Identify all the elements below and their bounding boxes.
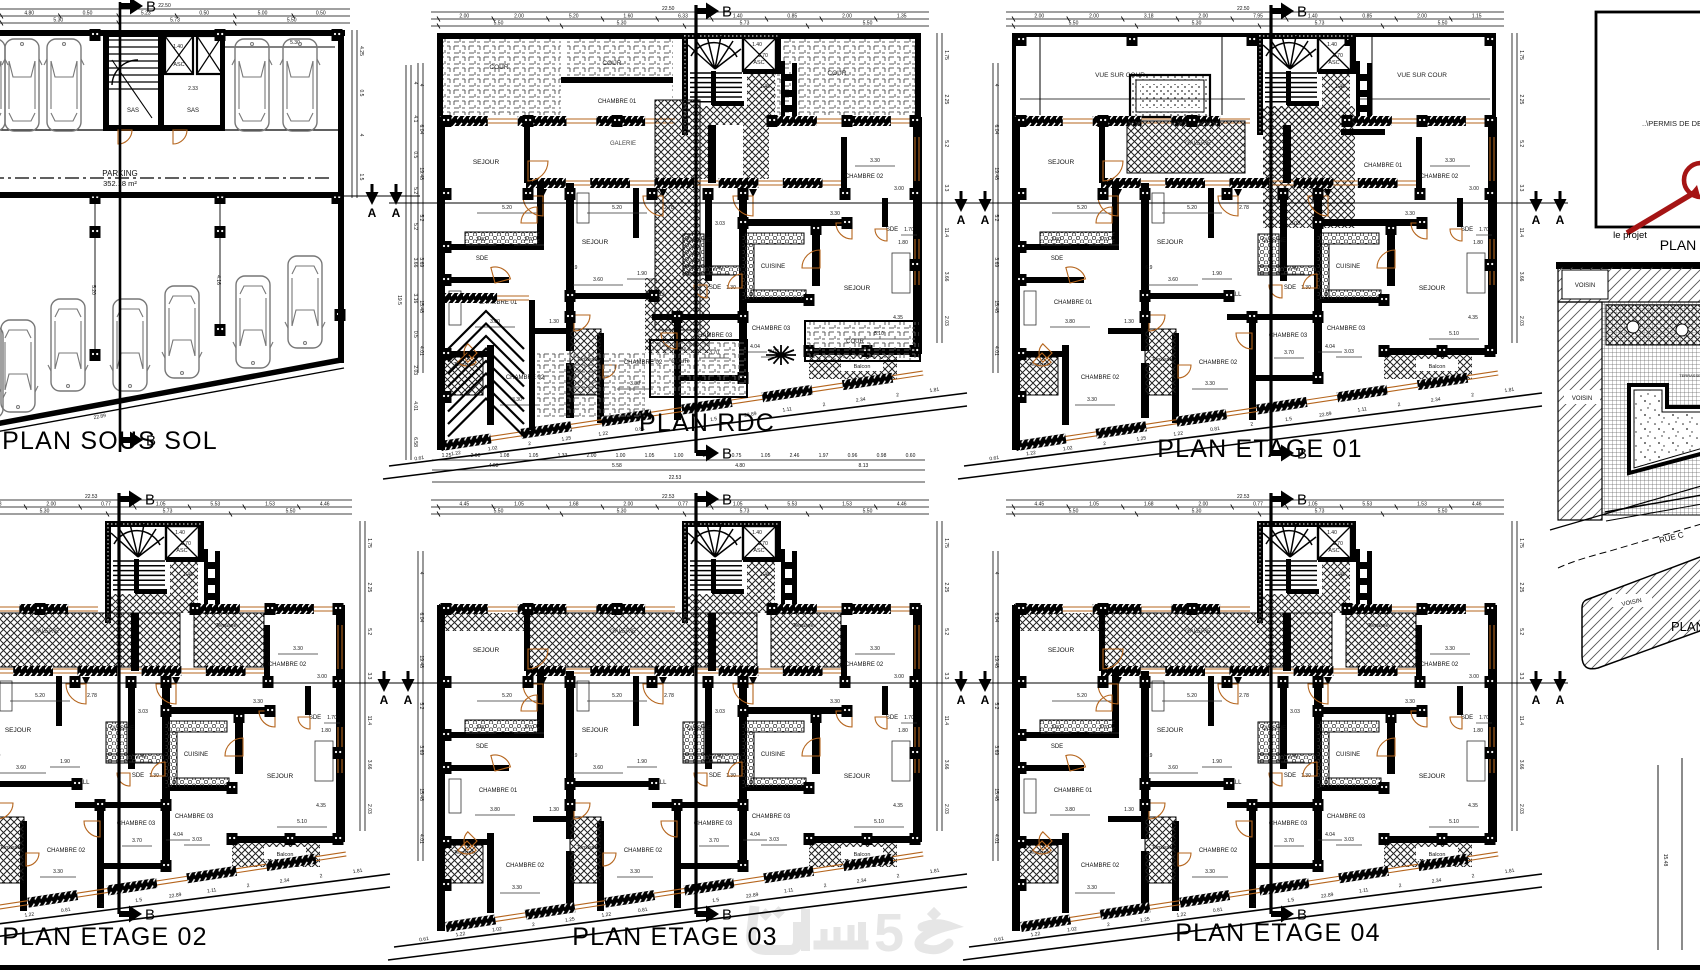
svg-text:CHAMBRE 02: CHAMBRE 02	[845, 662, 884, 668]
svg-text:3.18: 3.18	[1144, 14, 1154, 20]
svg-text:SEJOUR: SEJOUR	[267, 773, 294, 780]
svg-text:CHAMBRE 02: CHAMBRE 02	[47, 848, 86, 854]
svg-text:B: B	[722, 446, 732, 463]
svg-text:4.16: 4.16	[215, 275, 221, 285]
svg-text:3.66: 3.66	[366, 760, 372, 770]
svg-text:3.30: 3.30	[1087, 397, 1097, 403]
svg-text:1.90: 1.90	[1212, 759, 1222, 765]
svg-text:5.58: 5.58	[612, 463, 622, 469]
svg-text:ASC: ASC	[176, 548, 187, 554]
svg-text:5.20: 5.20	[502, 205, 512, 211]
svg-text:CHAMBRE 02: CHAMBRE 02	[1199, 848, 1238, 854]
svg-text:5.2: 5.2	[366, 628, 372, 635]
svg-text:5.2: 5.2	[993, 215, 999, 222]
svg-text:5.20: 5.20	[1077, 693, 1087, 699]
svg-text:1.30: 1.30	[549, 807, 559, 813]
svg-text:3.69: 3.69	[993, 745, 999, 755]
svg-text:CHAMBRE 02: CHAMBRE 02	[1199, 360, 1238, 366]
svg-text:3.3: 3.3	[1518, 673, 1524, 680]
svg-text:0.75: 0.75	[732, 453, 742, 459]
svg-text:15.48: 15.48	[418, 788, 424, 801]
svg-text:ASC: ASC	[753, 60, 764, 66]
svg-text:CHAMBRE 03: CHAMBRE 03	[1327, 814, 1366, 820]
svg-text:VOISIN: VOISIN	[1575, 283, 1595, 289]
svg-text:GALERIE: GALERIE	[1185, 629, 1211, 635]
svg-text:CHAMBRE 03: CHAMBRE 03	[694, 333, 733, 339]
svg-text:CHAMBRE 03: CHAMBRE 03	[117, 821, 156, 827]
svg-text:4.01: 4.01	[418, 834, 424, 844]
svg-text:1.90: 1.90	[637, 271, 647, 277]
svg-text:2.40: 2.40	[1051, 725, 1061, 731]
svg-text:3.03: 3.03	[1290, 709, 1300, 715]
svg-text:5.50: 5.50	[494, 21, 504, 27]
svg-text:22.53: 22.53	[662, 494, 675, 500]
svg-text:3.60: 3.60	[1168, 277, 1178, 283]
svg-text:5.2: 5.2	[412, 187, 418, 194]
svg-text:1.70: 1.70	[327, 715, 337, 721]
svg-text:2.78: 2.78	[664, 205, 674, 211]
svg-text:Terrasse: Terrasse	[576, 845, 597, 851]
svg-text:15.48: 15.48	[993, 300, 999, 313]
svg-text:8.13: 8.13	[859, 463, 869, 469]
svg-text:SDE: SDE	[1284, 285, 1296, 291]
svg-text:2.78: 2.78	[664, 693, 674, 699]
svg-text:0.50: 0.50	[83, 11, 93, 17]
svg-text:5.2: 5.2	[418, 215, 424, 222]
svg-text:1.08: 1.08	[500, 453, 510, 459]
svg-text:TERRASSE: TERRASSE	[1679, 373, 1700, 378]
svg-text:SEJOUR: SEJOUR	[1157, 727, 1184, 734]
svg-text:COUR: COUR	[489, 64, 508, 71]
svg-text:5.20: 5.20	[502, 693, 512, 699]
svg-text:1.40: 1.40	[175, 530, 185, 536]
svg-text:3.30: 3.30	[1445, 646, 1455, 652]
svg-text:1.80: 1.80	[1473, 240, 1483, 246]
svg-text:5.50: 5.50	[863, 509, 873, 515]
svg-text:2.25: 2.25	[943, 583, 949, 593]
svg-text:2.40: 2.40	[476, 725, 486, 731]
svg-text:5.50: 5.50	[1069, 509, 1079, 515]
svg-text:5.10: 5.10	[1449, 331, 1459, 337]
svg-text:1.70: 1.70	[758, 53, 768, 59]
svg-text:4.04: 4.04	[173, 832, 183, 838]
svg-text:4.35: 4.35	[893, 803, 903, 809]
svg-text:1.70: 1.70	[1479, 227, 1489, 233]
svg-text:SAS: SAS	[187, 108, 199, 114]
svg-text:3.3: 3.3	[943, 185, 949, 192]
svg-text:3.69: 3.69	[418, 257, 424, 267]
svg-text:15.48: 15.48	[1662, 854, 1668, 867]
svg-text:3.30: 3.30	[1405, 211, 1415, 217]
svg-text:SEJOUR: SEJOUR	[1419, 285, 1446, 292]
svg-text:1.5: 1.5	[1285, 416, 1293, 423]
svg-text:PLAN ETAGE 03: PLAN ETAGE 03	[572, 923, 778, 951]
svg-text:3.30: 3.30	[53, 869, 63, 875]
svg-text:2.03: 2.03	[943, 316, 949, 326]
svg-text:VOISIN: VOISIN	[1572, 396, 1592, 402]
svg-text:11.4: 11.4	[366, 716, 372, 726]
svg-text:0.85: 0.85	[787, 14, 797, 20]
svg-text:SEJOUR: SEJOUR	[1157, 239, 1184, 246]
svg-text:2.40: 2.40	[1051, 237, 1061, 243]
svg-text:1.05: 1.05	[156, 502, 166, 508]
svg-text:SDE: SDE	[476, 256, 488, 262]
svg-text:le projet: le projet	[1613, 230, 1647, 241]
svg-text:4.35: 4.35	[1468, 803, 1478, 809]
svg-text:ASC: ASC	[173, 62, 184, 68]
svg-text:ASC: ASC	[753, 548, 764, 554]
svg-text:PLAN ETAGE 02: PLAN ETAGE 02	[2, 923, 208, 951]
svg-text:1.40: 1.40	[1327, 42, 1337, 48]
svg-text:Terrasse: Terrasse	[1151, 845, 1172, 851]
svg-text:CHAMBRE 02: CHAMBRE 02	[1081, 863, 1120, 869]
svg-text:SDE: SDE	[886, 227, 898, 233]
svg-text:2.03: 2.03	[412, 365, 418, 375]
svg-text:CUISINE: CUISINE	[1336, 752, 1360, 758]
svg-text:6.9: 6.9	[571, 265, 578, 271]
svg-text:3.00: 3.00	[317, 674, 327, 680]
svg-text:Terrasse: Terrasse	[215, 623, 236, 629]
svg-text:6.33: 6.33	[678, 14, 688, 20]
svg-text:3.30: 3.30	[1205, 381, 1215, 387]
svg-text:15.48: 15.48	[993, 788, 999, 801]
svg-text:5.2: 5.2	[1518, 140, 1524, 147]
svg-text:3.30: 3.30	[253, 699, 263, 705]
svg-text:1.5: 1.5	[712, 897, 720, 904]
svg-text:2.03: 2.03	[1518, 804, 1524, 814]
svg-text:A: A	[1556, 213, 1565, 227]
svg-text:1.40: 1.40	[733, 14, 743, 20]
svg-text:7.95: 7.95	[1253, 14, 1263, 20]
svg-text:SDE: SDE	[309, 715, 321, 721]
svg-text:5: 5	[874, 903, 904, 963]
svg-text:GALERIE: GALERIE	[33, 629, 59, 635]
svg-text:CHAMBRE 01: CHAMBRE 01	[598, 99, 637, 105]
svg-text:0.5: 0.5	[412, 331, 418, 338]
svg-text:CHAMBRE 02: CHAMBRE 02	[1420, 174, 1459, 180]
svg-text:22.53: 22.53	[669, 475, 682, 481]
svg-text:SDE: SDE	[1461, 227, 1473, 233]
svg-text:Balcon: Balcon	[854, 852, 871, 858]
svg-text:COUR: COUR	[846, 339, 864, 345]
svg-text:SEJOUR: SEJOUR	[473, 647, 500, 654]
svg-text:3.30: 3.30	[1087, 885, 1097, 891]
svg-text:CHAMBRE 03: CHAMBRE 03	[175, 814, 214, 820]
svg-text:5.30: 5.30	[1192, 21, 1202, 27]
svg-text:11.4: 11.4	[1518, 228, 1524, 238]
svg-text:VUE SUR COUR: VUE SUR COUR	[1397, 72, 1447, 79]
svg-text:4.01: 4.01	[418, 346, 424, 356]
svg-text:1.25: 1.25	[442, 453, 452, 459]
svg-text:3.70: 3.70	[709, 838, 719, 844]
svg-text:A: A	[1532, 693, 1541, 707]
svg-text:4.46: 4.46	[320, 502, 330, 508]
svg-text:1.33: 1.33	[558, 453, 568, 459]
svg-text:3.66: 3.66	[943, 760, 949, 770]
svg-text:SEJOUR: SEJOUR	[844, 285, 871, 292]
svg-text:B: B	[145, 907, 155, 924]
svg-text:A: A	[1532, 213, 1541, 227]
svg-text:SAS: SAS	[127, 108, 139, 114]
svg-text:CHAMBRE 02: CHAMBRE 02	[1081, 375, 1120, 381]
svg-text:5.50: 5.50	[1069, 21, 1079, 27]
svg-text:1.75: 1.75	[1518, 538, 1524, 548]
svg-text:3.3: 3.3	[366, 673, 372, 680]
svg-text:SDE: SDE	[1051, 256, 1063, 262]
svg-text:5.20: 5.20	[569, 14, 579, 20]
svg-text:4.45: 4.45	[459, 502, 469, 508]
svg-text:5.73: 5.73	[740, 21, 750, 27]
svg-text:1.90: 1.90	[637, 759, 647, 765]
svg-text:Balcon: Balcon	[1429, 852, 1446, 858]
svg-text:3.03: 3.03	[1344, 349, 1354, 355]
svg-text:1.05: 1.05	[514, 502, 524, 508]
svg-text:1.40: 1.40	[752, 530, 762, 536]
svg-text:5.73: 5.73	[163, 509, 173, 515]
svg-text:3.00: 3.00	[894, 186, 904, 192]
svg-text:5.2: 5.2	[418, 703, 424, 710]
svg-text:2.78: 2.78	[87, 693, 97, 699]
svg-text:19.48: 19.48	[418, 167, 424, 180]
svg-text:0.85: 0.85	[1362, 14, 1372, 20]
svg-text:1.70: 1.70	[181, 541, 191, 547]
svg-text:1.70: 1.70	[904, 227, 914, 233]
svg-text:1.68: 1.68	[1144, 502, 1154, 508]
svg-text:15.48: 15.48	[418, 300, 424, 313]
svg-text:SDE: SDE	[1051, 744, 1063, 750]
svg-text:PLAN ETAGE 01: PLAN ETAGE 01	[1157, 435, 1363, 463]
svg-text:5.20: 5.20	[1187, 205, 1197, 211]
svg-text:3.03: 3.03	[715, 709, 725, 715]
svg-text:4.80: 4.80	[24, 11, 34, 17]
svg-text:5.20: 5.20	[90, 285, 96, 295]
svg-text:PLAN: PLAN	[1671, 619, 1700, 634]
svg-text:5.00: 5.00	[258, 11, 268, 17]
svg-text:1.68: 1.68	[569, 502, 579, 508]
svg-text:0.50: 0.50	[199, 11, 209, 17]
svg-text:CHAMBRE 02: CHAMBRE 02	[845, 174, 884, 180]
svg-text:2.70: 2.70	[1099, 725, 1109, 731]
svg-text:CHAMBRE 02: CHAMBRE 02	[268, 662, 307, 668]
svg-text:11.4: 11.4	[1518, 716, 1524, 726]
svg-text:B: B	[722, 492, 732, 509]
svg-text:4: 4	[358, 134, 364, 137]
svg-text:0.98: 0.98	[877, 453, 887, 459]
svg-text:1.05: 1.05	[1089, 502, 1099, 508]
svg-text:CHAMBRE 02: CHAMBRE 02	[1420, 662, 1459, 668]
svg-text:2.70: 2.70	[1099, 237, 1109, 243]
svg-text:A: A	[1556, 693, 1565, 707]
svg-text:4: 4	[418, 84, 424, 87]
svg-text:3.80: 3.80	[490, 807, 500, 813]
svg-text:PLAN RDC: PLAN RDC	[639, 409, 775, 437]
svg-text:1.75: 1.75	[1518, 50, 1524, 60]
svg-text:3.66: 3.66	[1518, 272, 1524, 282]
svg-text:3.60: 3.60	[16, 765, 26, 771]
svg-text:2.00: 2.00	[46, 502, 56, 508]
svg-text:5.20: 5.20	[1077, 205, 1087, 211]
svg-text:3.30: 3.30	[1445, 158, 1455, 164]
svg-text:4.04: 4.04	[1325, 832, 1335, 838]
svg-text:4: 4	[412, 82, 418, 85]
svg-text:4.01: 4.01	[993, 834, 999, 844]
svg-text:5.50: 5.50	[286, 509, 296, 515]
svg-text:1.80: 1.80	[898, 240, 908, 246]
svg-text:3.03: 3.03	[769, 837, 779, 843]
svg-text:1.80: 1.80	[321, 728, 331, 734]
svg-text:5.20: 5.20	[612, 693, 622, 699]
svg-text:5.30: 5.30	[40, 509, 50, 515]
svg-text:2.00: 2.00	[1417, 14, 1427, 20]
svg-text:1.90: 1.90	[1212, 271, 1222, 277]
svg-text:SDE: SDE	[1461, 715, 1473, 721]
svg-text:4.46: 4.46	[897, 502, 907, 508]
svg-text:5.30: 5.30	[53, 18, 63, 24]
svg-text:2.25: 2.25	[943, 95, 949, 105]
svg-text:5.30: 5.30	[617, 509, 627, 515]
svg-text:3.69: 3.69	[418, 745, 424, 755]
svg-text:4.01: 4.01	[993, 346, 999, 356]
svg-text:6.04: 6.04	[418, 613, 424, 623]
svg-text:3.3: 3.3	[943, 673, 949, 680]
svg-text:2.03: 2.03	[1518, 316, 1524, 326]
svg-text:5.2: 5.2	[943, 628, 949, 635]
svg-text:Terrasse: Terrasse	[1367, 623, 1388, 629]
svg-text:4: 4	[418, 572, 424, 575]
svg-text:GALERIE: GALERIE	[610, 141, 636, 147]
svg-text:1.00: 1.00	[616, 453, 626, 459]
svg-text:22.53: 22.53	[1237, 494, 1250, 500]
svg-text:5.20: 5.20	[612, 205, 622, 211]
svg-text:PLAN SOUS SOL: PLAN SOUS SOL	[2, 427, 218, 455]
svg-text:0.96: 0.96	[848, 453, 858, 459]
svg-text:5.2: 5.2	[993, 703, 999, 710]
svg-text:3.3: 3.3	[1518, 185, 1524, 192]
svg-text:1.80: 1.80	[898, 728, 908, 734]
svg-text:5.10: 5.10	[874, 819, 884, 825]
svg-text:B: B	[1297, 492, 1307, 509]
svg-text:0.5: 0.5	[358, 90, 364, 97]
svg-text:5.30: 5.30	[617, 21, 627, 27]
svg-text:3.00: 3.00	[1469, 674, 1479, 680]
svg-text:5.20: 5.20	[35, 693, 45, 699]
svg-text:PLAN ETAGE 04: PLAN ETAGE 04	[1175, 919, 1381, 947]
svg-text:2.40: 2.40	[136, 754, 146, 760]
svg-text:SDE: SDE	[709, 285, 721, 291]
svg-text:CUISINE: CUISINE	[184, 752, 208, 758]
svg-text:3.16: 3.16	[412, 294, 418, 304]
svg-text:19.48: 19.48	[993, 655, 999, 668]
svg-text:2.46: 2.46	[790, 453, 800, 459]
svg-text:1.15: 1.15	[1472, 14, 1482, 20]
svg-text:19.48: 19.48	[993, 167, 999, 180]
svg-text:6.04: 6.04	[418, 125, 424, 135]
svg-text:A: A	[368, 206, 377, 220]
svg-text:5.73: 5.73	[740, 509, 750, 515]
svg-text:4: 4	[993, 84, 999, 87]
svg-text:SEJOUR: SEJOUR	[5, 727, 32, 734]
svg-text:1.30: 1.30	[549, 319, 559, 325]
svg-text:19.5: 19.5	[396, 295, 402, 305]
svg-text:B: B	[722, 4, 732, 21]
svg-text:2.03: 2.03	[943, 804, 949, 814]
svg-text:3.30: 3.30	[1405, 699, 1415, 705]
svg-text:0.5: 0.5	[412, 151, 418, 158]
svg-text:11.4: 11.4	[943, 228, 949, 238]
svg-text:2.33: 2.33	[188, 86, 198, 92]
svg-text:1.05: 1.05	[1308, 502, 1318, 508]
svg-text:4.80: 4.80	[735, 463, 745, 469]
svg-text:1.90: 1.90	[60, 759, 70, 765]
svg-text:CHAMBRE 03: CHAMBRE 03	[1269, 333, 1308, 339]
svg-text:SDE: SDE	[886, 715, 898, 721]
svg-text:1.40: 1.40	[1308, 14, 1318, 20]
svg-text:SEJOUR: SEJOUR	[582, 239, 609, 246]
svg-text:5.50: 5.50	[863, 21, 873, 27]
svg-text:3.30: 3.30	[293, 646, 303, 652]
svg-text:6.58: 6.58	[412, 437, 418, 447]
svg-text:3.30: 3.30	[870, 158, 880, 164]
svg-text:1.75: 1.75	[943, 50, 949, 60]
svg-text:5.30: 5.30	[1192, 509, 1202, 515]
svg-text:3.00: 3.00	[1469, 186, 1479, 192]
svg-text:6.9: 6.9	[1146, 753, 1153, 759]
svg-text:CHAMBRE 03: CHAMBRE 03	[752, 814, 791, 820]
svg-text:CHAMBRE 02: CHAMBRE 02	[624, 848, 663, 854]
svg-text:1.70: 1.70	[1333, 53, 1343, 59]
svg-text:ASC: ASC	[1328, 548, 1339, 554]
svg-text:1.53: 1.53	[265, 502, 275, 508]
svg-text:4.45: 4.45	[1034, 502, 1044, 508]
svg-text:22.50: 22.50	[662, 6, 675, 12]
svg-text:COUR: COUR	[671, 359, 689, 365]
svg-text:CHAMBRE 01: CHAMBRE 01	[479, 788, 518, 794]
svg-text:1.05: 1.05	[529, 453, 539, 459]
svg-text:SEJOUR: SEJOUR	[1419, 773, 1446, 780]
svg-text:CUISINE: CUISINE	[110, 726, 134, 732]
svg-text:19.48: 19.48	[418, 655, 424, 668]
svg-text:CHAMBRE 03: CHAMBRE 03	[1269, 821, 1308, 827]
svg-text:Balcon: Balcon	[1429, 364, 1446, 370]
svg-text:SEJOUR: SEJOUR	[844, 773, 871, 780]
svg-text:3.30: 3.30	[870, 646, 880, 652]
svg-text:3.60: 3.60	[593, 277, 603, 283]
svg-text:4.03: 4.03	[489, 463, 499, 469]
svg-text:6.04: 6.04	[993, 613, 999, 623]
svg-text:SEJOUR: SEJOUR	[1048, 159, 1075, 166]
svg-text:Balcon: Balcon	[854, 364, 871, 370]
svg-text:5.73: 5.73	[1315, 509, 1325, 515]
svg-text:Terrasse: Terrasse	[1151, 357, 1172, 363]
svg-text:PLAN: PLAN	[1660, 237, 1697, 253]
svg-text:1.70: 1.70	[1479, 715, 1489, 721]
svg-text:1.75: 1.75	[943, 538, 949, 548]
svg-text:4.35: 4.35	[316, 803, 326, 809]
svg-text:1.75: 1.75	[366, 538, 372, 548]
svg-text:1.60: 1.60	[623, 14, 633, 20]
svg-text:2.00: 2.00	[842, 14, 852, 20]
svg-text:0.50: 0.50	[316, 11, 326, 17]
svg-text:CUISINE: CUISINE	[1262, 726, 1286, 732]
svg-text:SDE: SDE	[1284, 773, 1296, 779]
svg-text:2.70: 2.70	[524, 237, 534, 243]
svg-text:11.4: 11.4	[943, 716, 949, 726]
svg-text:3.30: 3.30	[630, 869, 640, 875]
svg-text:1.40: 1.40	[1327, 530, 1337, 536]
svg-text:0.77: 0.77	[678, 502, 688, 508]
svg-text:1.40: 1.40	[173, 44, 183, 50]
svg-text:1.68: 1.68	[0, 502, 2, 508]
